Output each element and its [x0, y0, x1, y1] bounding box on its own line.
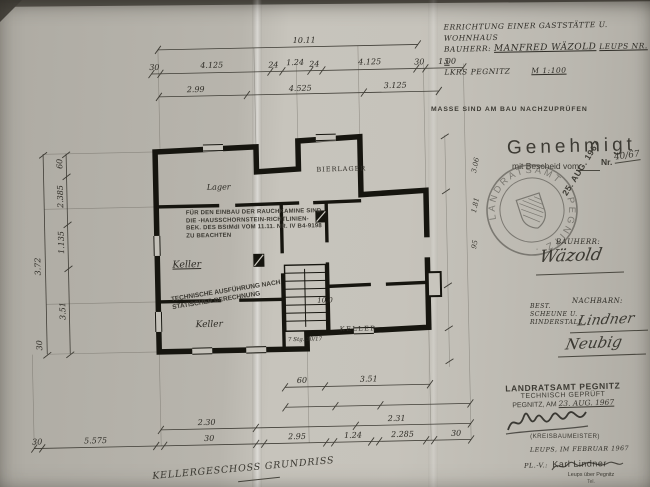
dim: 1.24: [344, 431, 362, 440]
title-note-bauherr-name: MANFRED WÄZOLD: [494, 42, 597, 54]
author-address: Leups über Pegnitz: [548, 472, 634, 478]
dim: 30: [414, 57, 424, 66]
kreisbaumeister-caption: (KREISBAUMEISTER): [506, 433, 624, 440]
dim-top-overall: 10.11: [293, 36, 316, 45]
dim: 2.285: [390, 430, 414, 439]
extension-lines: [26, 43, 471, 448]
scanned-blueprint-page: 10.11 30 4.125 24 1.24 24 4.125 30 1.00 …: [0, 0, 650, 487]
room-label-bierlager: BIERLAGER: [316, 165, 366, 174]
stair-note: 7 Stg. 30/17: [288, 336, 323, 343]
room-labels: Lager BIERLAGER Keller Keller KELLER 7 S…: [169, 164, 377, 345]
author-phone: Tel.: [548, 479, 634, 485]
dim: 24: [267, 60, 278, 69]
dim: 30: [204, 434, 214, 443]
author-role-label: PL.-V.:: [524, 461, 548, 469]
chimney-guideline-stamp: FÜR DEN EINBAU DER RAUCHKAMINE SIND DIE …: [186, 207, 362, 240]
dim: 2.99: [186, 85, 205, 94]
dim: 4.125: [199, 61, 223, 70]
dim: 30: [35, 340, 44, 350]
dim: 30: [149, 63, 159, 72]
hand-note: 10,0: [317, 296, 333, 304]
bauherr-signature: Wäzold: [538, 245, 604, 267]
dim: 3.72: [33, 258, 42, 276]
dim: 30: [451, 429, 461, 438]
dim: 60: [297, 376, 307, 385]
title-note-bauherr-label: BAUHERR:: [444, 44, 491, 54]
check-note: MASSE SIND AM BAU NACHZUPRÜFEN: [431, 106, 588, 113]
dim: 3.51: [58, 302, 67, 320]
title-note: ERRICHTUNG EINER GASTSTÄTTE U. WOHNHAUS …: [444, 18, 650, 78]
bauherr-signature-line: [536, 271, 624, 275]
approved-stamp-nr-value: 40/67: [613, 149, 640, 164]
room-label-keller-bl: Keller: [195, 320, 224, 331]
bestand-line: RINDERSTALL: [530, 319, 583, 327]
dim: 5.575: [84, 436, 107, 445]
dim: 2.31: [387, 414, 406, 423]
dim: 3.51: [360, 374, 378, 383]
dim: 24: [308, 59, 319, 68]
title-note-line3: LKRS PEGNITZ M 1:100: [444, 63, 650, 78]
dimension-lines: [23, 39, 474, 452]
neighbor-signature-1: Lindner: [576, 311, 636, 330]
dim: 2.385: [56, 185, 65, 209]
dim: 4.525: [288, 84, 312, 93]
dim: 4.125: [357, 57, 381, 66]
dim: 2.30: [197, 418, 216, 427]
neighbor-signature-2: Neubig: [564, 333, 624, 354]
hand-figure: 3.06: [470, 157, 481, 174]
room-label-keller-main: Keller: [171, 259, 202, 271]
bestand-line: SCHEUNE U.: [530, 311, 583, 319]
floor-plan-drawing: 10.11 30 4.125 24 1.24 24 4.125 30 1.00 …: [17, 21, 481, 465]
title-note-lkrs: LKRS PEGNITZ: [444, 67, 510, 77]
dim: 60: [55, 159, 64, 169]
wall-outline: [151, 131, 443, 356]
approved-stamp-nr-label: Nr.: [601, 157, 612, 167]
seal-coat-of-arms: [516, 193, 549, 232]
author-place-date: LEUPS, IM FEBRUAR 1967: [530, 445, 629, 454]
neighbor-signature-2-line: [558, 353, 646, 357]
dim: 3.125: [384, 81, 407, 90]
room-label-lager: Lager: [206, 182, 232, 192]
dim: 1.135: [57, 231, 66, 254]
hand-figure: 95: [470, 239, 480, 249]
dim: 1.24: [286, 58, 304, 67]
photo-top-shadow: [0, 0, 650, 7]
dim: 2.95: [287, 432, 306, 441]
drawing-caption-flourish: [238, 477, 280, 482]
dim: 30: [32, 437, 42, 446]
nachbarn-label: NACHBARN:: [572, 297, 623, 305]
bestand-note: BEST. SCHEUNE U. RINDERSTALL: [530, 303, 583, 327]
title-note-scale: M 1:100: [531, 66, 566, 76]
room-label-keller-right: KELLER: [340, 324, 377, 333]
